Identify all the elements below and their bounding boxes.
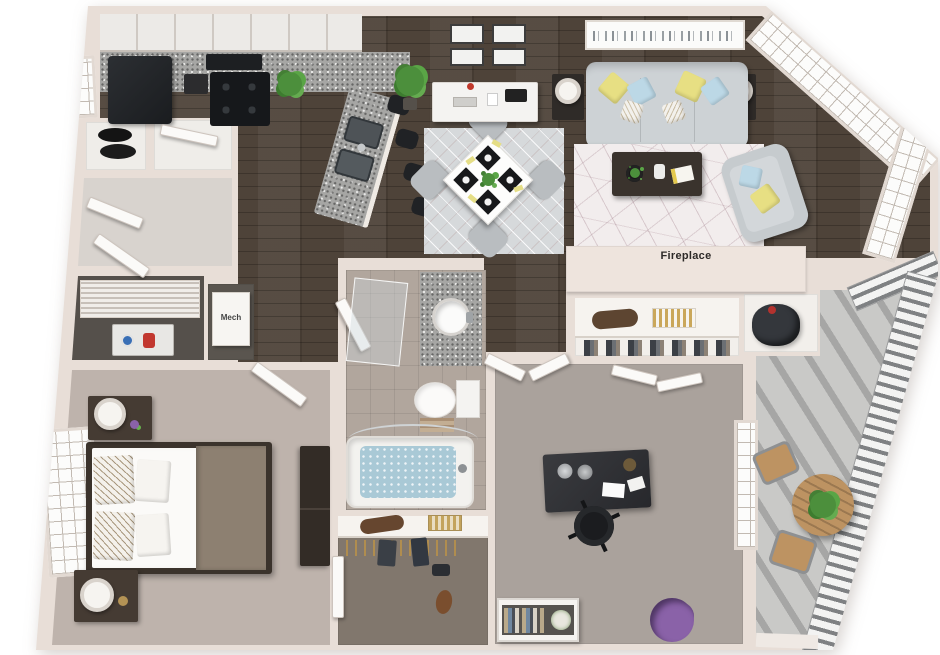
office-window [734,420,758,550]
tub-faucet [458,464,467,473]
washer-dryer [112,324,174,356]
table-plant [810,492,836,518]
sink-faucet [466,312,473,323]
hanging-clothes [584,340,732,356]
shoes [432,564,450,576]
decor-card [487,93,498,106]
hanging-garment [377,539,397,566]
pillow-white [135,513,172,557]
desk-lamp-base [557,463,573,479]
flower-purple [130,420,139,429]
decor-camera [505,89,527,102]
nightstand-lamp [80,578,114,612]
chair-seat [568,500,619,551]
decor-red-flower [467,83,474,90]
dresser [300,446,330,566]
nightstand-lamp [94,398,126,430]
closet-side-door [332,556,344,618]
fireplace: Fireplace [566,246,806,292]
tub-water [360,446,456,498]
mech-label: Mech [213,313,249,322]
hanging-garment [411,537,430,567]
basket [428,515,462,531]
skyline-art [585,20,745,50]
wall-art-frame [492,48,526,66]
laundry-louvered-doors [80,280,200,318]
magazine [671,165,695,184]
storage-disc [100,144,136,159]
vanity-sink [432,298,470,336]
decor-tray [453,97,477,107]
floor-plan-canvas: Mech [0,0,940,655]
decor-gold [118,596,128,606]
upper-cabinets [100,14,362,52]
potted-plant [848,588,896,628]
desk-paper [627,476,646,492]
purple-plant [650,598,694,642]
pillow-blue [738,165,763,190]
desk-globe [577,464,593,480]
table-centerpiece [482,173,495,186]
storage-disc [98,128,132,142]
shoe-rack [652,308,696,328]
range-cooktop [210,72,270,126]
hanging-rod [346,540,456,556]
refrigerator [108,56,172,124]
wall-art-frame [450,48,484,66]
grill [752,304,800,346]
counter-plant [278,72,302,96]
decor-vase [654,164,665,179]
bed-throw [196,446,266,570]
microwave [206,54,262,70]
building: Mech [0,0,940,655]
toilet-bowl [414,382,456,418]
sofa [586,56,748,148]
desk-bowl [623,458,637,472]
washer-knob-blue [121,334,134,347]
pillow-white [135,459,172,503]
building-walls: Mech [0,0,940,655]
coffee-machine [184,74,208,94]
balcony-bottom-wall [756,633,818,649]
sideboard [432,82,538,122]
floor-plant [396,66,424,96]
pillow-patterned [93,511,135,561]
desk-paper [602,482,625,498]
kitchen-window [70,55,97,118]
shelf-flowers [551,610,571,630]
coffee-table [612,152,702,196]
pillow-patterned [93,455,135,505]
planter-pot [864,616,886,636]
skyline-graphic [593,31,737,41]
sink-basin-2 [333,148,375,183]
shower-glass [346,277,408,366]
toilet-tank [456,380,480,418]
bookshelf [497,598,579,642]
detergent-red [143,333,155,348]
bowl-greenery [630,168,640,178]
wall-art-frame [492,24,526,44]
fireplace-label: Fireplace [566,250,806,262]
mechanical-unit: Mech [212,292,250,346]
table-lamp [555,78,581,104]
grill-knob-red [768,306,776,314]
books [504,608,544,633]
plant-pot [403,98,417,110]
wall-art-frame [450,24,484,44]
bathtub [346,436,474,508]
